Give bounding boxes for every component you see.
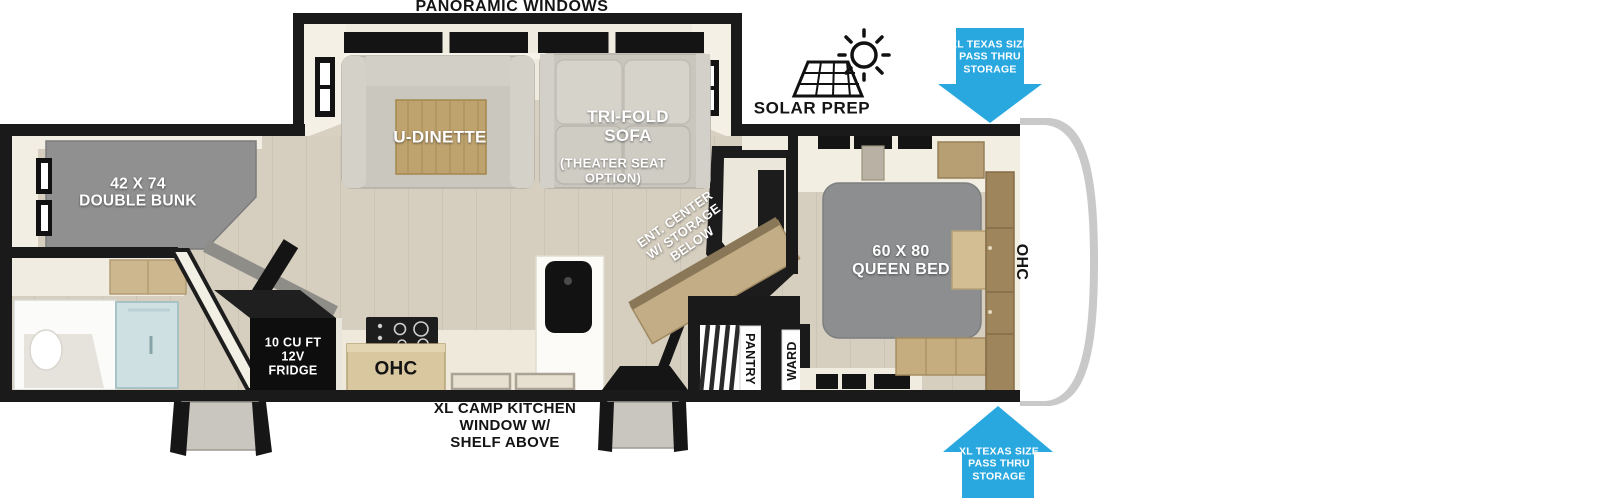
camp-kitchen-window — [516, 374, 574, 389]
solar-prep-label: SOLAR PREP — [754, 98, 871, 117]
bed-headboard-shelf — [952, 231, 986, 289]
ward-label: WARD — [785, 341, 799, 380]
floorplan-drawing — [0, 0, 1600, 499]
entry-step-left — [170, 402, 272, 456]
pantry-label: PANTRY — [743, 333, 757, 385]
panoramic-windows-label: PANORAMIC WINDOWS — [416, 0, 609, 16]
double-bunk-label: 42 X 74 DOUBLE BUNK — [79, 176, 197, 211]
fridge-label: 10 CU FT 12V FRIDGE — [265, 336, 322, 377]
camp-kitchen-label: XL CAMP KITCHEN WINDOW W/ SHELF ABOVE — [434, 401, 576, 451]
front-cap — [1020, 118, 1098, 406]
bedroom-top-cabinet — [938, 142, 984, 178]
u-dinette-booth — [342, 56, 534, 188]
u-dinette-label: U-DINETTE — [393, 127, 486, 146]
kitchen-sink — [545, 261, 592, 333]
pass-thru-storage-bottom-label: XL TEXAS SIZE PASS THRU STORAGE — [959, 445, 1039, 482]
slideout-side-window-left — [315, 57, 335, 117]
wardrobe-cabinet — [986, 172, 1014, 392]
bed-foot-bench — [896, 338, 986, 375]
toilet — [30, 330, 62, 370]
pass-thru-storage-top-label: XL TEXAS SIZE PASS THRU STORAGE — [950, 38, 1030, 75]
solar-prep-icon — [794, 30, 889, 96]
bedroom-small-cabinet — [862, 146, 884, 180]
ohc-bedroom-label: OHC — [1012, 244, 1030, 280]
theater-seat-option-label: (THEATER SEAT OPTION) — [560, 156, 666, 185]
floorplan-canvas: PANORAMIC WINDOWS SOLAR PREP XL TEXAS SI… — [0, 0, 1600, 499]
shower-glass-door — [116, 302, 178, 388]
ohc-kitchen-label: OHC — [374, 358, 417, 379]
queen-bed-label: 60 X 80 QUEEN BED — [852, 243, 950, 279]
pantry-shelves — [700, 325, 740, 392]
camp-kitchen-window — [452, 374, 510, 389]
tri-fold-sofa-label: TRI-FOLD SOFA — [587, 107, 669, 145]
entry-step-main — [598, 402, 688, 452]
